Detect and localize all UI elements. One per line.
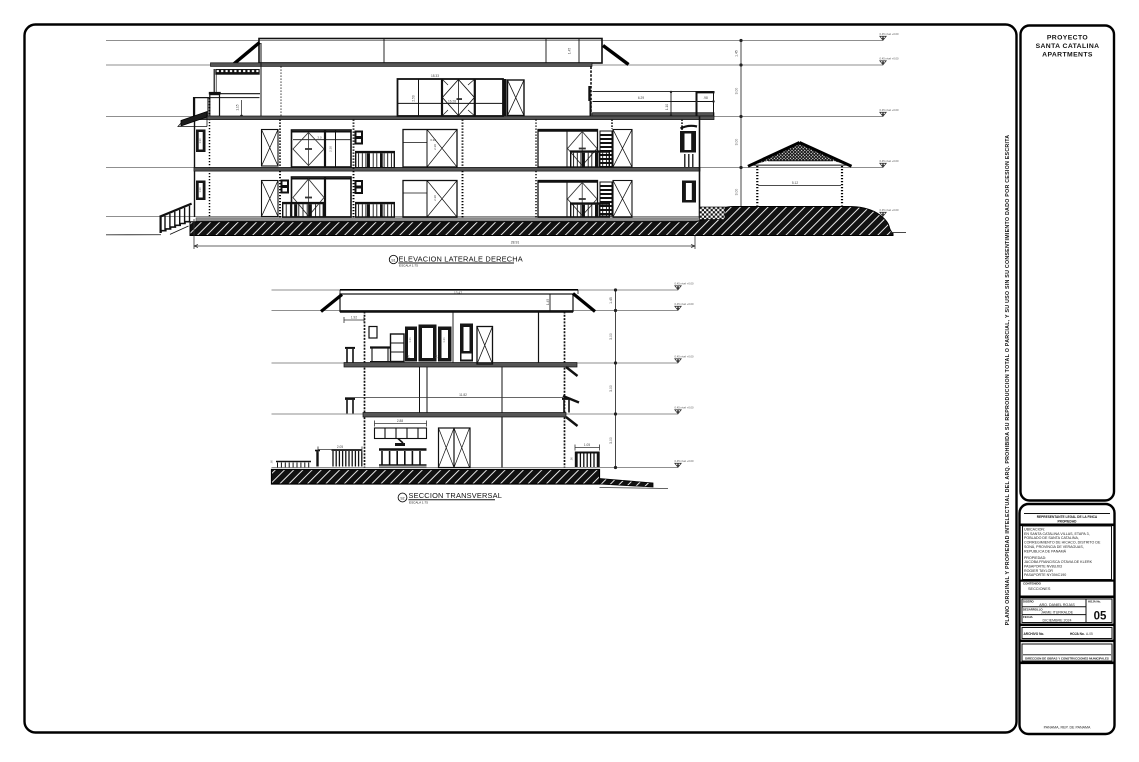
svg-text:0.45 nivel +0.00: 0.45 nivel +0.00 <box>880 56 900 60</box>
svg-text:SONÁ, PROVINCIA DE VERAGUAS,: SONÁ, PROVINCIA DE VERAGUAS, <box>1024 545 1084 549</box>
svg-text:3.00: 3.00 <box>609 437 613 444</box>
svg-text:REPUBLICA DE PANAMÁ: REPUBLICA DE PANAMÁ <box>1024 549 1067 553</box>
svg-text:ARCHIVO No.: ARCHIVO No. <box>1024 632 1045 636</box>
svg-text:0.45 nivel +0.00: 0.45 nivel +0.00 <box>880 159 900 163</box>
svg-text:JAIME ITURRALDE: JAIME ITURRALDE <box>1041 611 1074 615</box>
svg-text:POBLADO DE SANTA CATALINA,: POBLADO DE SANTA CATALINA, <box>1024 536 1079 540</box>
svg-text:.84: .84 <box>435 355 439 359</box>
svg-text:0.45 nivel +0.00: 0.45 nivel +0.00 <box>675 405 695 409</box>
svg-text:28.91: 28.91 <box>511 241 520 245</box>
svg-text:APARTMENTS: APARTMENTS <box>1042 52 1093 59</box>
svg-text:18.33: 18.33 <box>431 74 439 78</box>
svg-text:ARQ. DANIEL ROJAS: ARQ. DANIEL ROJAS <box>1039 603 1075 607</box>
svg-text:CONTENIDO: CONTENIDO <box>1023 582 1042 586</box>
svg-text:SANTA CATALINA: SANTA CATALINA <box>1036 43 1100 50</box>
svg-text:1.15: 1.15 <box>236 104 240 110</box>
svg-text:UBICACION:: UBICACION: <box>1024 528 1045 532</box>
svg-text:HOJA No.: HOJA No. <box>1070 632 1085 636</box>
svg-text:1.31: 1.31 <box>442 337 446 343</box>
svg-text:ESCALA 1:75: ESCALA 1:75 <box>409 501 428 505</box>
svg-text:3.0: 3.0 <box>317 136 322 140</box>
svg-text:0.45 nivel +0.00: 0.45 nivel +0.00 <box>880 108 900 112</box>
svg-text:1.45: 1.45 <box>568 48 572 54</box>
svg-text:FECHA: FECHA <box>1023 615 1033 619</box>
svg-text:PLANO ORIGINAL Y PROPIEDAD INT: PLANO ORIGINAL Y PROPIEDAD INTELECTUAL D… <box>1005 135 1011 626</box>
svg-text:.98: .98 <box>703 96 708 100</box>
svg-text:0.45 nivel +0.00: 0.45 nivel +0.00 <box>880 208 900 212</box>
svg-text:DISEÑO: DISEÑO <box>1023 599 1035 604</box>
svg-text:1.10: 1.10 <box>665 104 669 110</box>
svg-text:6.29: 6.29 <box>638 96 644 100</box>
svg-text:DICIEMBRE 2024: DICIEMBRE 2024 <box>1043 618 1072 622</box>
svg-text:1.05: 1.05 <box>584 443 590 447</box>
svg-text:1.31: 1.31 <box>408 337 412 343</box>
svg-text:3.00: 3.00 <box>609 385 613 392</box>
svg-text:2.30: 2.30 <box>329 146 333 152</box>
svg-text:PASAPORTE NV8UJ03: PASAPORTE NV8UJ03 <box>1024 565 1062 569</box>
svg-text:.90: .90 <box>570 457 574 461</box>
svg-text:.60: .60 <box>270 460 274 464</box>
svg-text:2.30: 2.30 <box>433 144 437 150</box>
svg-text:ESCALA 1:75: ESCALA 1:75 <box>399 264 418 268</box>
svg-text:3.00: 3.00 <box>735 88 739 95</box>
svg-text:2.88: 2.88 <box>397 419 403 423</box>
svg-text:HOJA No.: HOJA No. <box>1088 600 1101 604</box>
svg-text:2.05: 2.05 <box>337 445 343 449</box>
svg-text:1.30: 1.30 <box>198 187 202 193</box>
svg-text:05: 05 <box>1094 611 1107 623</box>
svg-text:PROPIEDAD:: PROPIEDAD: <box>1024 556 1046 560</box>
svg-text:3.30: 3.30 <box>430 138 436 142</box>
svg-text:S2: S2 <box>400 496 404 500</box>
svg-text:1.45: 1.45 <box>546 299 550 305</box>
svg-text:2.30: 2.30 <box>433 195 437 201</box>
svg-text:SECCION TRANSVERSAL: SECCION TRANSVERSAL <box>409 491 503 500</box>
svg-text:0.45 nivel +0.00: 0.45 nivel +0.00 <box>675 354 695 358</box>
svg-text:1.45: 1.45 <box>609 297 613 304</box>
svg-text:1.30: 1.30 <box>198 138 202 144</box>
svg-text:2.50: 2.50 <box>412 95 416 101</box>
svg-text:ELEVACION LATERALE DERECHA: ELEVACION LATERALE DERECHA <box>399 254 523 263</box>
svg-text:0.45 nivel +0.00: 0.45 nivel +0.00 <box>675 459 695 463</box>
svg-text:11.82: 11.82 <box>459 393 467 397</box>
svg-text:0.45 nivel +0.00: 0.45 nivel +0.00 <box>880 32 900 36</box>
svg-text:SECCIONES: SECCIONES <box>1028 587 1051 591</box>
svg-text:A-05: A-05 <box>1086 632 1093 636</box>
svg-text:0.45 nivel +0.00: 0.45 nivel +0.00 <box>675 281 695 285</box>
svg-text:.84: .84 <box>407 355 411 359</box>
svg-text:PROPIEDAD: PROPIEDAD <box>1058 519 1078 523</box>
svg-text:1.92: 1.92 <box>351 316 357 320</box>
svg-text:PROYECTO: PROYECTO <box>1047 35 1088 42</box>
svg-text:S1: S1 <box>391 258 395 262</box>
svg-text:1.45: 1.45 <box>735 50 739 57</box>
svg-text:3.00: 3.00 <box>735 139 739 146</box>
svg-text:3.00: 3.00 <box>735 189 739 196</box>
svg-text:PANAMA, REP. DE PANAMA: PANAMA, REP. DE PANAMA <box>1044 726 1091 730</box>
svg-text:PASAPORTE NY394C190: PASAPORTE NY394C190 <box>1024 573 1066 577</box>
svg-text:5.12: 5.12 <box>792 181 798 185</box>
svg-text:0.45 nivel +0.00: 0.45 nivel +0.00 <box>675 302 695 306</box>
svg-text:3.00: 3.00 <box>609 333 613 340</box>
svg-text:16.28: 16.28 <box>448 100 456 104</box>
svg-text:DIRECCION DE OBRAS Y CONSTRUCC: DIRECCION DE OBRAS Y CONSTRUCCIONES MUNI… <box>1025 656 1109 660</box>
